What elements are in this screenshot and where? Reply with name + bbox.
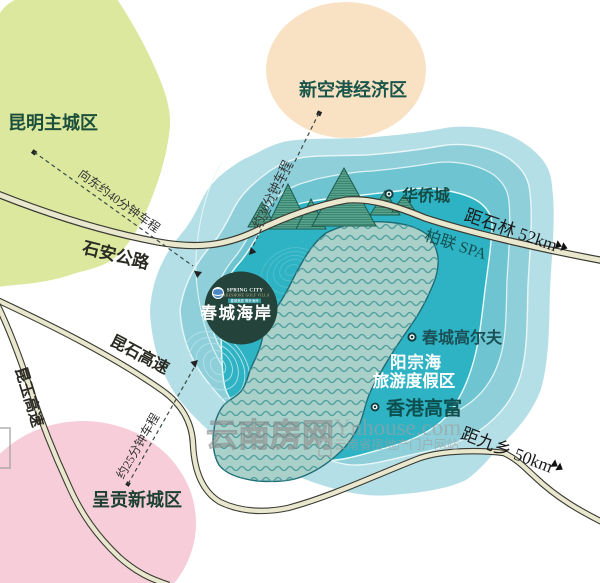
svg-text:云南省房地产门户网站: 云南省房地产门户网站 [334, 437, 459, 452]
svg-text:春城高尔夫: 春城高尔夫 [421, 328, 503, 347]
svg-text:新空港经济区: 新空港经济区 [299, 79, 407, 100]
svg-text:云南房网: 云南房网 [206, 417, 334, 453]
svg-text:春城美居 尊贵海岸: 春城美居 尊贵海岸 [231, 298, 260, 303]
svg-text:阳宗海: 阳宗海 [390, 352, 442, 372]
svg-text:LAKESHORE GOLF VILLA: LAKESHORE GOLF VILLA [220, 294, 269, 298]
svg-text:旅游度假区: 旅游度假区 [373, 371, 456, 391]
svg-text:昆明主城区: 昆明主城区 [8, 112, 98, 133]
svg-text:春城海岸: 春城海岸 [201, 303, 273, 323]
svg-text:华侨城: 华侨城 [402, 186, 450, 205]
svg-text:呈贡新城区: 呈贡新城区 [92, 489, 182, 510]
svg-text:Ynhouse.com: Ynhouse.com [334, 415, 461, 440]
